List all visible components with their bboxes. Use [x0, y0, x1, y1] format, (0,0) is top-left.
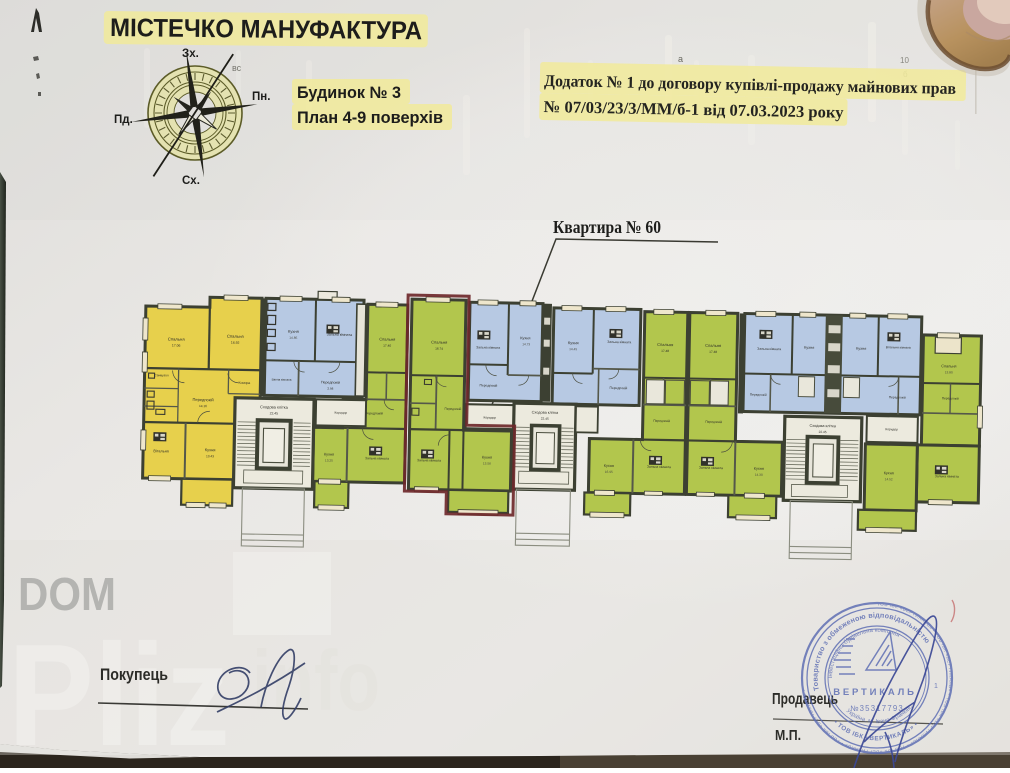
svg-text:Пн.: Пн. — [252, 91, 270, 103]
svg-text:Сходова клітка: Сходова клітка — [809, 424, 836, 429]
svg-text:Кухня: Кухня — [520, 336, 530, 340]
svg-text:МІСТЕЧКО МАНУФАКТУРА: МІСТЕЧКО МАНУФАКТУРА — [110, 14, 422, 45]
svg-text:Вітальня кімната: Вітальня кімната — [886, 345, 911, 349]
svg-text:Сходова клітка: Сходова клітка — [532, 410, 559, 415]
svg-text:Кухня: Кухня — [324, 452, 334, 456]
svg-text:22.45: 22.45 — [541, 417, 549, 421]
svg-text:Передпокій: Передпокій — [609, 386, 627, 390]
svg-text:16.74: 16.74 — [435, 347, 443, 351]
svg-text:Спальня: Спальня — [657, 342, 673, 347]
svg-text:Сх.: Сх. — [182, 175, 200, 187]
svg-text:Кухня: Кухня — [884, 471, 894, 475]
svg-text:Кухня: Кухня — [205, 447, 216, 452]
svg-text:16.92: 16.92 — [231, 341, 240, 345]
svg-text:ВЕРТИКАЛЬ: ВЕРТИКАЛЬ — [833, 687, 917, 698]
svg-text:Спальня: Спальня — [168, 336, 185, 341]
svg-text:Спальня: Спальня — [941, 364, 956, 368]
svg-text:Санвузол: Санвузол — [154, 373, 168, 377]
svg-text:Коридор: Коридор — [483, 416, 496, 420]
svg-text:13.43: 13.43 — [206, 454, 214, 458]
svg-text:2.98: 2.98 — [327, 387, 333, 391]
svg-text:Передпокій: Передпокій — [445, 407, 462, 411]
svg-text:22.45: 22.45 — [819, 430, 827, 434]
svg-text:Коридор: Коридор — [335, 411, 348, 415]
svg-text:Кухня: Кухня — [856, 347, 866, 351]
svg-text:а: а — [678, 54, 683, 64]
svg-text:Покупець: Покупець — [100, 665, 168, 684]
svg-text:14.45: 14.45 — [569, 347, 577, 351]
svg-text:Передпокій: Передпокій — [705, 420, 722, 424]
svg-text:info: info — [252, 634, 380, 729]
svg-text:Передпокій: Передпокій — [942, 396, 959, 400]
svg-text:Вітальня: Вітальня — [153, 449, 169, 453]
svg-text:14.52: 14.52 — [885, 477, 893, 481]
svg-text:17.40: 17.40 — [383, 344, 391, 348]
svg-text:Спальня: Спальня — [227, 334, 244, 339]
svg-text:вс: вс — [232, 63, 242, 73]
svg-text:14.85: 14.85 — [289, 336, 297, 340]
svg-text:Зальна кімната: Зальна кімната — [757, 347, 781, 351]
svg-text:Кухня: Кухня — [288, 329, 299, 334]
svg-text:Передпокій: Передпокій — [321, 380, 340, 384]
svg-text:Передпокій: Передпокій — [479, 383, 497, 387]
svg-text:Ванна кімната: Ванна кімната — [272, 377, 292, 381]
svg-text:Кухня: Кухня — [804, 346, 814, 350]
svg-text:13.80: 13.80 — [945, 370, 953, 374]
svg-text:17.48: 17.48 — [709, 350, 717, 354]
svg-text:Pliz: Pliz — [8, 614, 230, 768]
svg-text:Коридор: Коридор — [885, 427, 898, 431]
svg-text:М.П.: М.П. — [775, 728, 801, 744]
svg-text:Кухня: Кухня — [754, 467, 764, 471]
svg-text:Передпокій: Передпокій — [365, 411, 383, 415]
svg-text:Кухня: Кухня — [568, 340, 579, 345]
svg-text:План 4-9 поверхів: План 4-9 поверхів — [297, 109, 443, 127]
svg-text:14.16: 14.16 — [199, 404, 207, 408]
svg-text:10: 10 — [900, 56, 909, 65]
svg-text:DOM: DOM — [18, 568, 116, 620]
svg-text:Квартира № 60: Квартира № 60 — [553, 217, 661, 237]
svg-text:Кухня: Кухня — [482, 455, 492, 459]
svg-text:Пд.: Пд. — [114, 114, 133, 126]
svg-text:13.56: 13.56 — [483, 462, 491, 466]
svg-text:16.95: 16.95 — [605, 470, 613, 474]
svg-text:1: 1 — [934, 683, 938, 690]
svg-text:Сходова клітка: Сходова клітка — [260, 404, 289, 410]
svg-text:Спальня: Спальня — [379, 337, 395, 342]
svg-text:Зальна кімната: Зальна кімната — [607, 340, 631, 344]
svg-text:Зальна кімната: Зальна кімната — [699, 466, 723, 470]
svg-text:17.06: 17.06 — [172, 344, 181, 348]
svg-text:14.30: 14.30 — [755, 473, 763, 477]
svg-text:Передпокій: Передпокій — [889, 395, 906, 399]
svg-text:Спальня: Спальня — [705, 343, 721, 348]
svg-text:Зх.: Зх. — [182, 48, 199, 60]
svg-text:Передпокій: Передпокій — [193, 397, 214, 402]
svg-text:Кухня: Кухня — [604, 464, 614, 468]
svg-text:17.48: 17.48 — [661, 349, 669, 353]
svg-text:Комора: Комора — [238, 381, 250, 385]
svg-text:Будинок № 3: Будинок № 3 — [297, 84, 401, 102]
svg-text:22.45: 22.45 — [270, 411, 279, 415]
svg-text:Зальна кімната: Зальна кімната — [417, 458, 441, 462]
svg-text:14.73: 14.73 — [522, 342, 530, 346]
svg-text:Зальна кімната: Зальна кімната — [647, 465, 671, 469]
svg-text:Спальня: Спальня — [431, 340, 447, 345]
svg-text:Передпокій: Передпокій — [653, 419, 670, 423]
svg-text:Зальна кімната: Зальна кімната — [365, 456, 389, 460]
svg-text:13.25: 13.25 — [325, 458, 333, 462]
svg-text:Зальна кімната: Зальна кімната — [935, 474, 959, 478]
svg-text:Зальна кімната: Зальна кімната — [476, 345, 500, 349]
svg-text:Передпокій: Передпокій — [750, 393, 767, 397]
